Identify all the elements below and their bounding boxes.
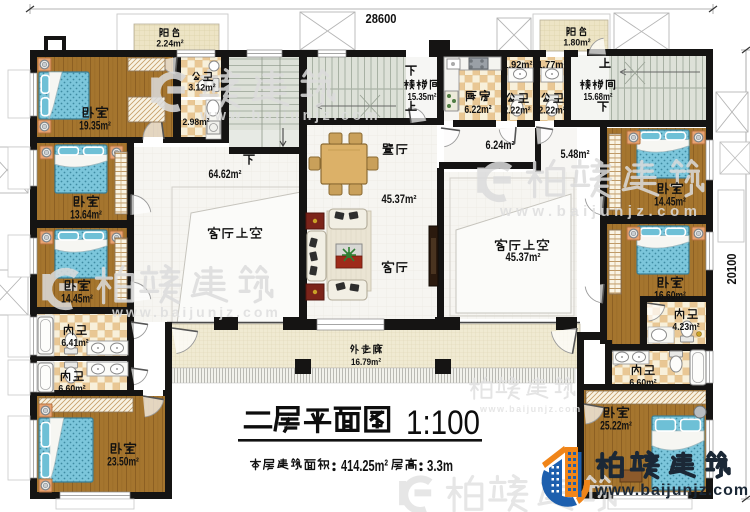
svg-text:64.62m²: 64.62m²	[209, 169, 242, 181]
svg-text:19.35m²: 19.35m²	[79, 121, 111, 133]
svg-text:14.45m²: 14.45m²	[654, 197, 686, 209]
svg-text:2.22m²: 2.22m²	[538, 104, 566, 116]
svg-text:5.48m²: 5.48m²	[561, 149, 590, 161]
svg-text:15.68m²: 15.68m²	[584, 91, 613, 103]
svg-text:414.25m²: 414.25m²	[341, 458, 388, 475]
svg-text:13.64m²: 13.64m²	[70, 210, 102, 222]
svg-text:3.12m²: 3.12m²	[188, 83, 215, 94]
svg-text:6.22m²: 6.22m²	[464, 104, 492, 116]
svg-text:28600: 28600	[366, 12, 397, 26]
svg-text:www.baijunjz.com: www.baijunjz.com	[111, 304, 281, 320]
svg-text:6.60m²: 6.60m²	[629, 377, 657, 389]
svg-text:www.baijunjz.com: www.baijunjz.com	[594, 482, 749, 499]
svg-text:4.23m²: 4.23m²	[672, 321, 700, 333]
svg-text:2.24m²: 2.24m²	[156, 39, 183, 50]
svg-text:2.22m²: 2.22m²	[503, 104, 531, 116]
svg-text:15.35m²: 15.35m²	[408, 91, 437, 103]
svg-text:20100: 20100	[725, 253, 739, 284]
svg-text:1.80m²: 1.80m²	[563, 38, 590, 49]
svg-text:2.98m²: 2.98m²	[183, 117, 210, 128]
svg-text:3.3m: 3.3m	[427, 458, 453, 475]
svg-text:1:100: 1:100	[406, 404, 480, 442]
svg-text:16.60m²: 16.60m²	[654, 291, 686, 303]
svg-text:6.41m²: 6.41m²	[61, 337, 89, 349]
svg-text:www.baijunjz.com: www.baijunjz.com	[479, 404, 582, 414]
svg-text:14.45m²: 14.45m²	[61, 294, 93, 306]
svg-text:www.baijunjz.com: www.baijunjz.com	[199, 108, 381, 124]
svg-text:1.77m²: 1.77m²	[538, 59, 567, 71]
svg-text:45.37m²: 45.37m²	[506, 252, 541, 264]
svg-text:6.60m²: 6.60m²	[58, 383, 86, 395]
svg-text:6.24m²: 6.24m²	[486, 140, 515, 152]
svg-text:23.50m²: 23.50m²	[107, 457, 139, 469]
svg-text:25.22m²: 25.22m²	[600, 421, 632, 433]
svg-text:1.92m²: 1.92m²	[504, 59, 533, 71]
svg-text:16.79m²: 16.79m²	[351, 357, 381, 368]
svg-text:45.37m²: 45.37m²	[382, 194, 417, 206]
